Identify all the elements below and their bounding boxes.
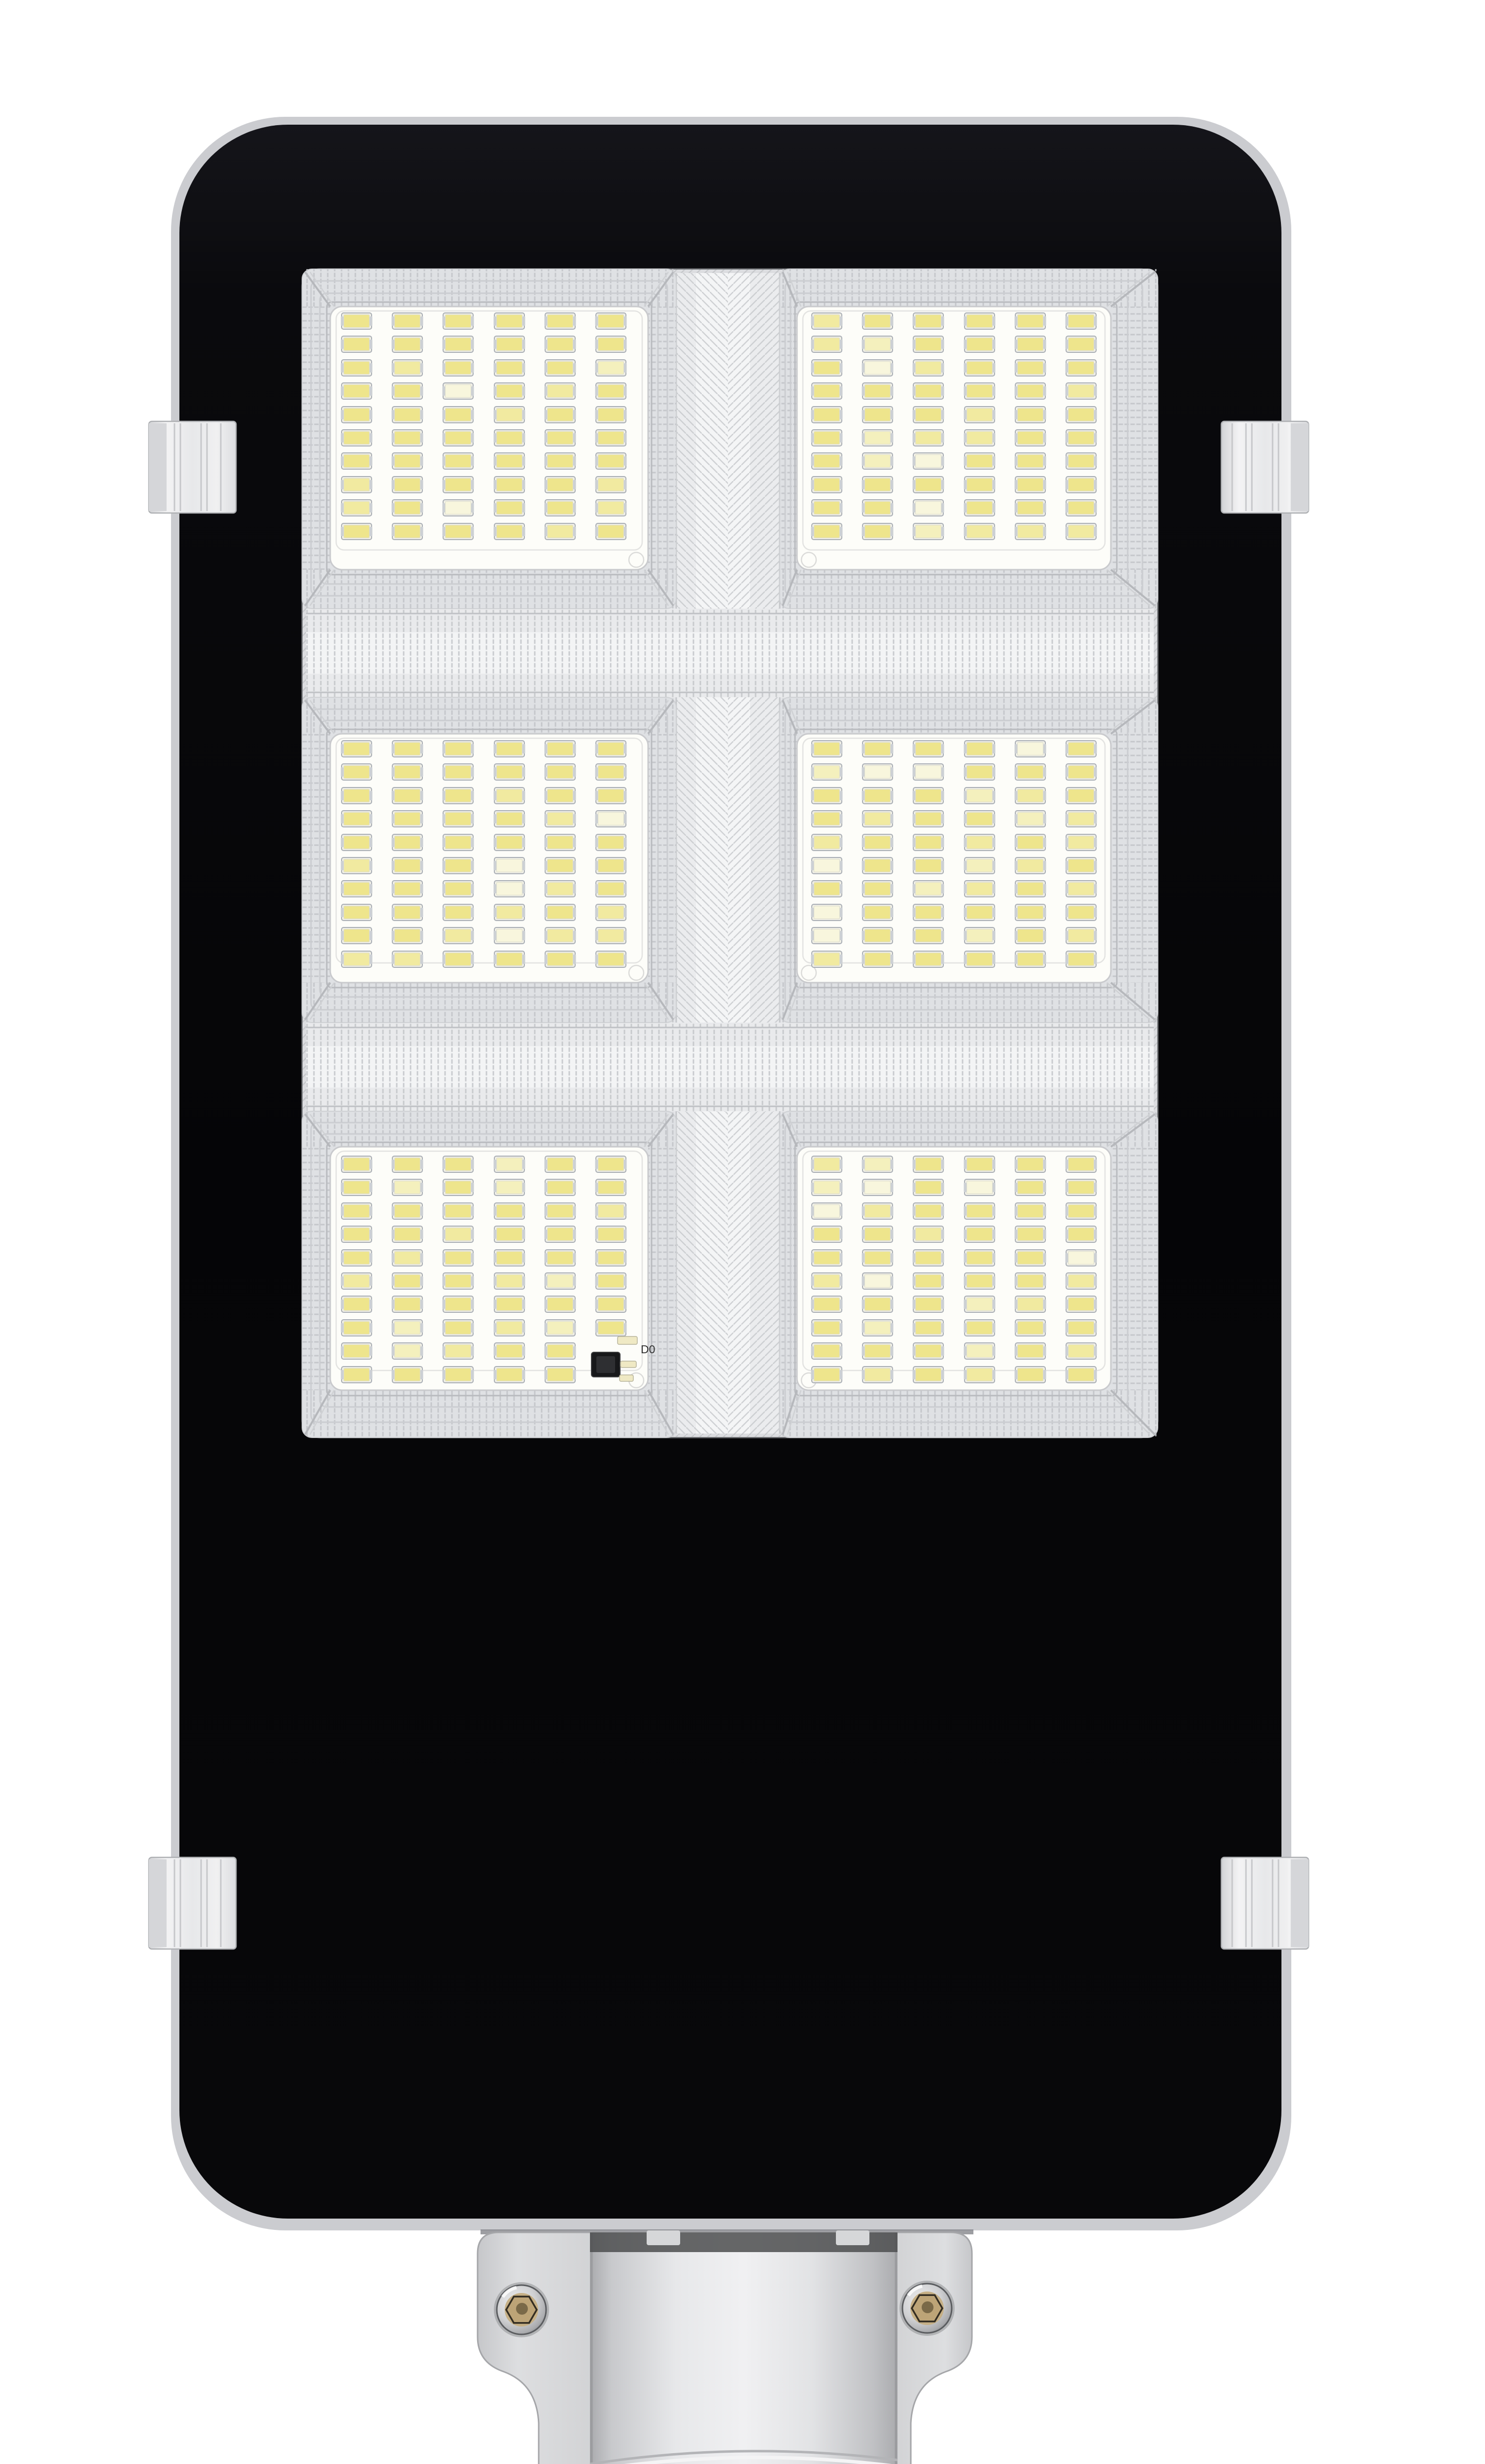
svg-text:D0: D0	[641, 1343, 655, 1356]
